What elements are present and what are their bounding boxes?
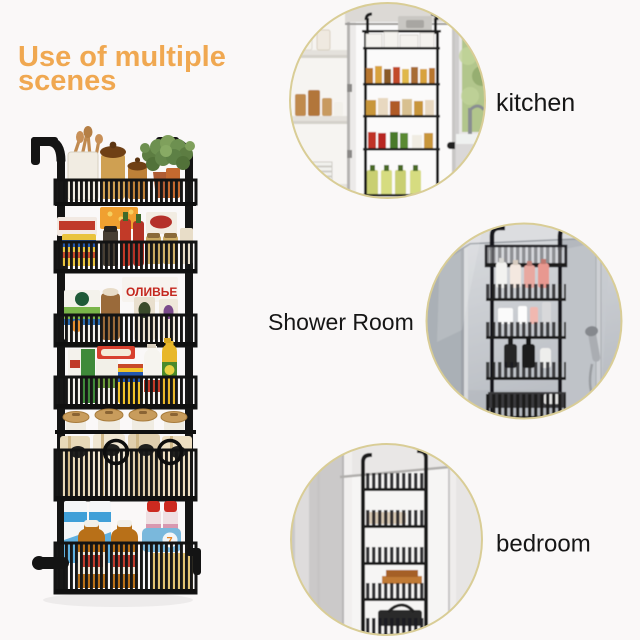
svg-text:scenes: scenes: [18, 65, 116, 97]
svg-text:ОЛИВЬЕ: ОЛИВЬЕ: [126, 285, 177, 299]
svg-text:Shower Room: Shower Room: [268, 309, 414, 335]
svg-text:bedroom: bedroom: [496, 531, 591, 558]
svg-text:kitchen: kitchen: [496, 89, 575, 117]
